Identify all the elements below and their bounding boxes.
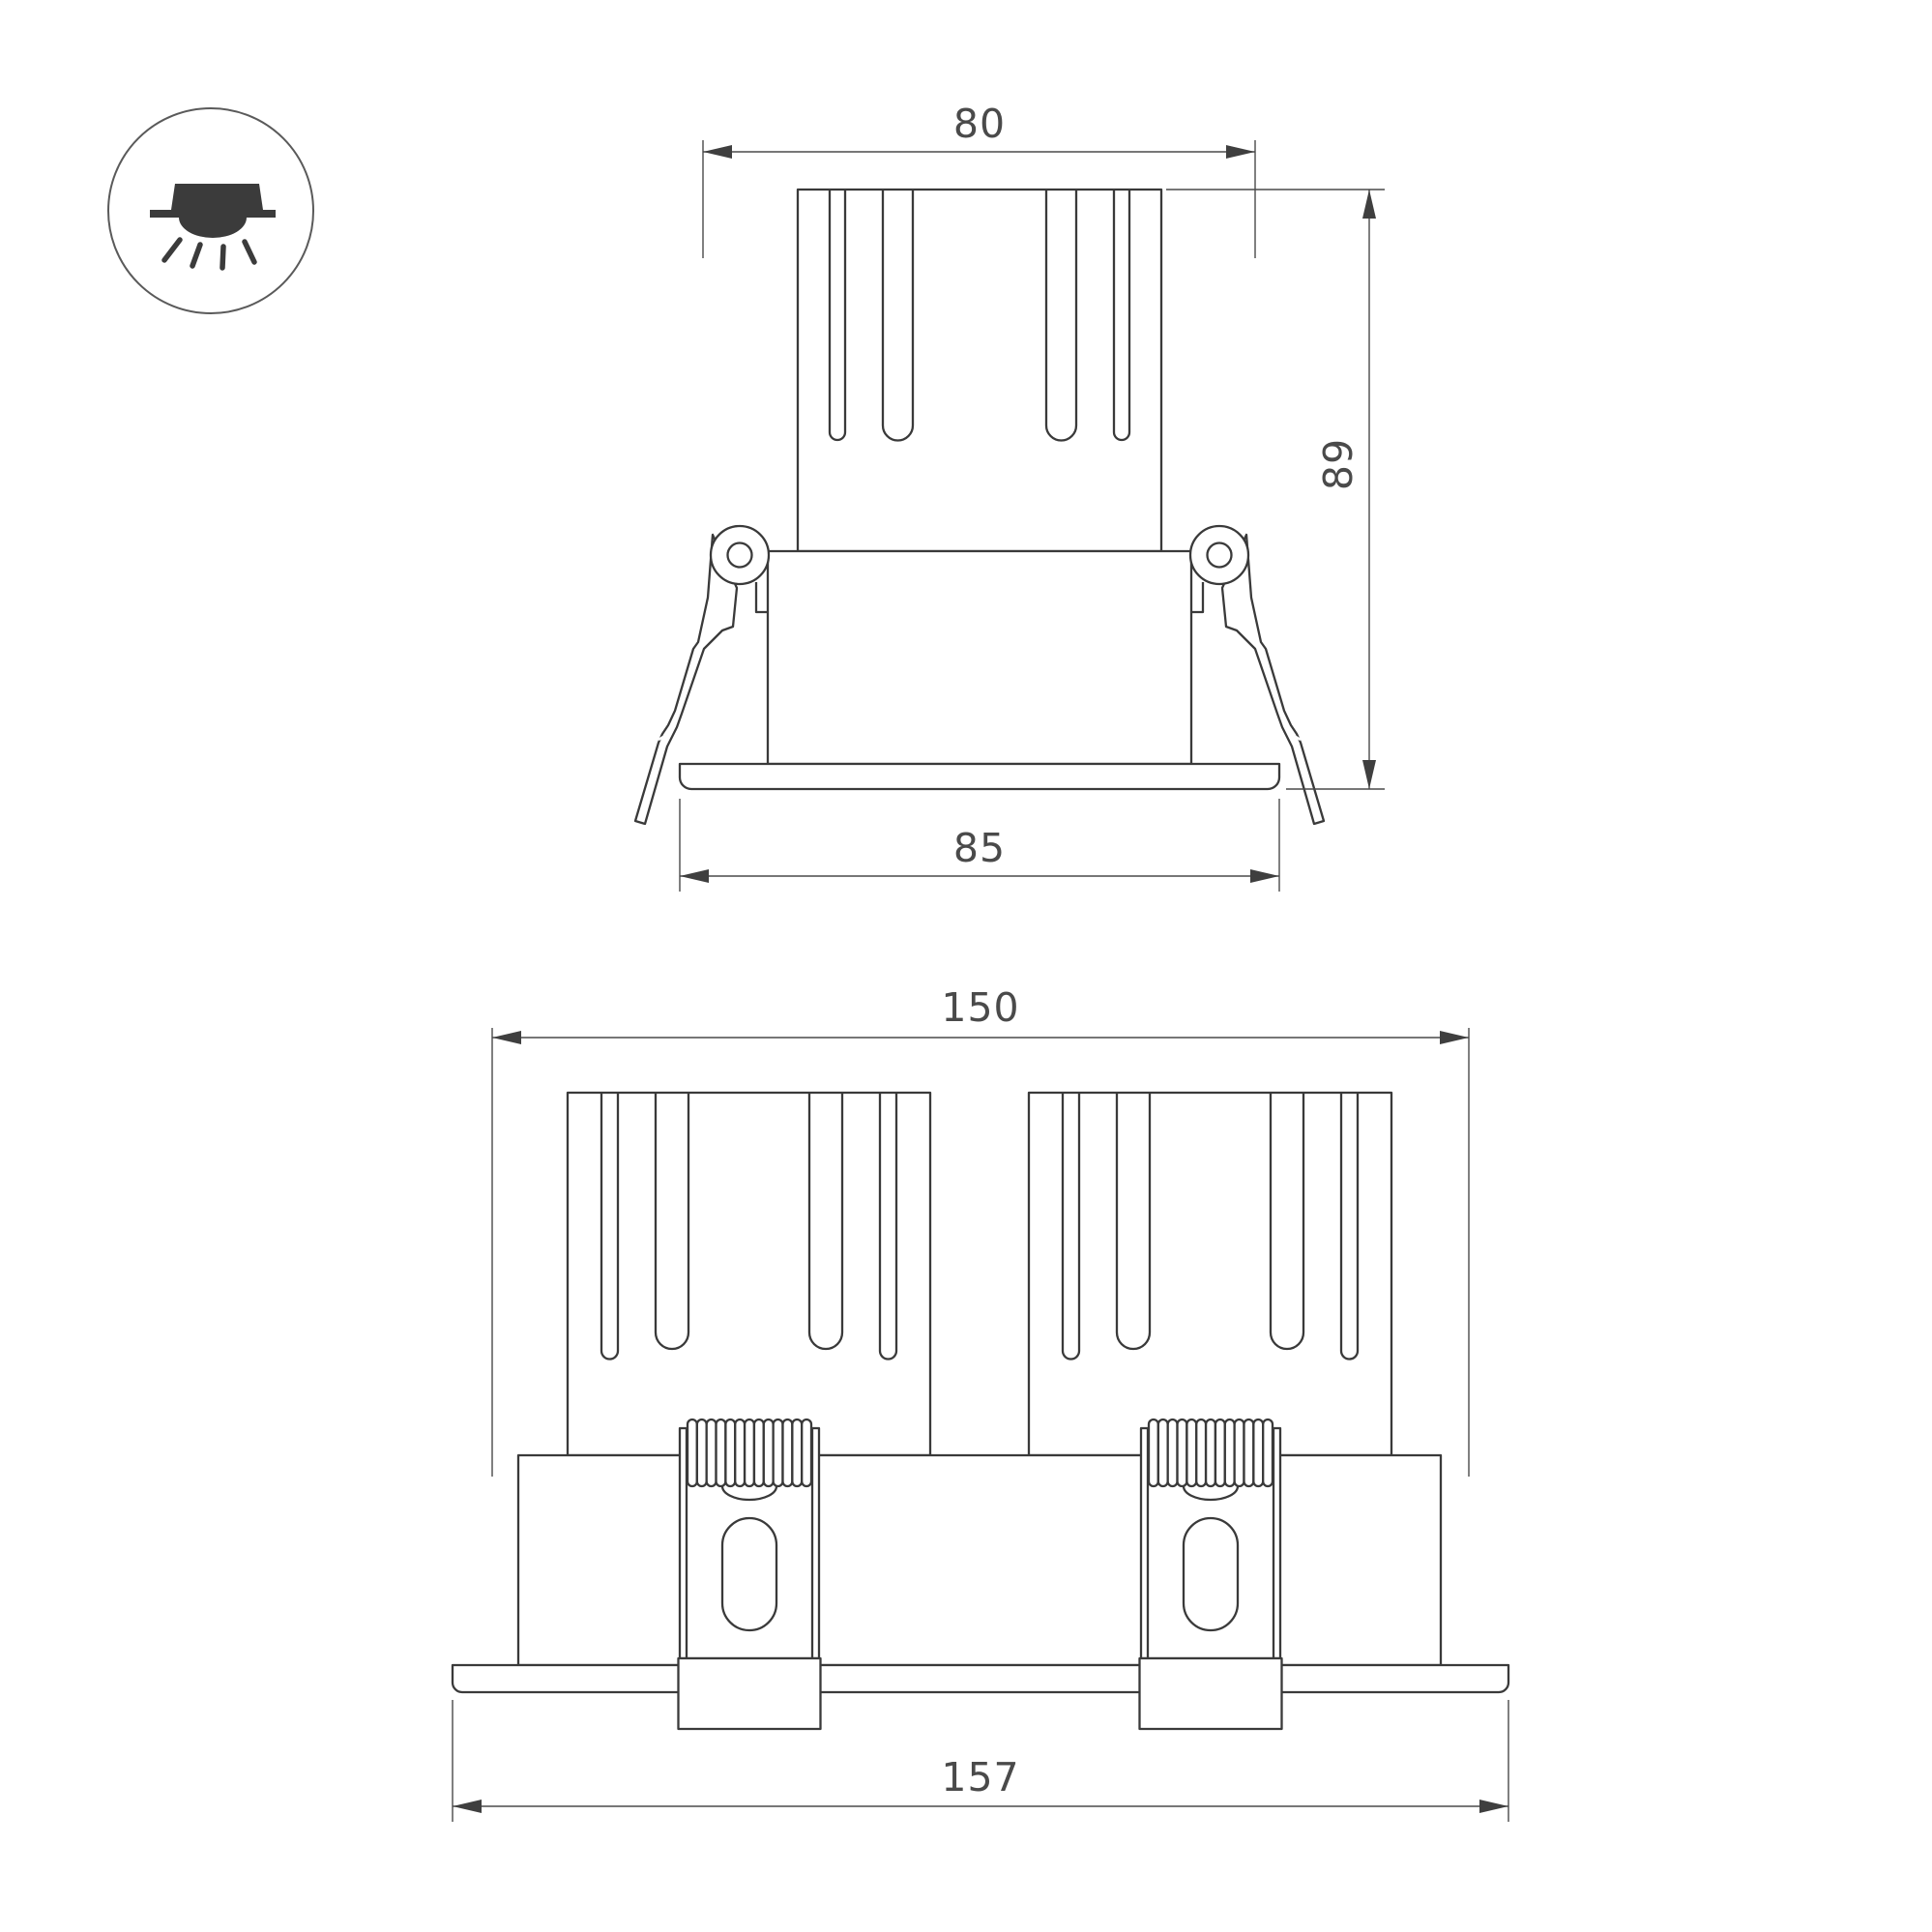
clip-pivot-right: [1190, 526, 1248, 584]
icon-light-rays: [164, 240, 254, 268]
dim-label-89: 89: [1315, 438, 1361, 490]
dim-label-150: 150: [941, 984, 1019, 1031]
dim-label-80: 80: [953, 101, 1006, 147]
single-module-view: 80 89 85: [635, 101, 1385, 892]
mounting-bracket-1: [679, 1420, 821, 1729]
dual-frame-body: [518, 1455, 1441, 1665]
heatsink-2-outline: [1029, 1093, 1391, 1455]
dim-label-157: 157: [941, 1754, 1019, 1800]
mounting-bracket-2: [1140, 1420, 1282, 1729]
dim-label-85: 85: [953, 825, 1006, 871]
dual-trim-flange: [453, 1665, 1508, 1692]
icon-lamp-lens: [179, 218, 247, 238]
trim-flange: [680, 764, 1279, 789]
dual-module-view: 150 157: [453, 984, 1508, 1822]
icon-ceiling-line: [150, 210, 276, 218]
heatsink-outline: [798, 190, 1161, 551]
heatsink-1-outline: [568, 1093, 930, 1455]
recessed-downlight-icon: [108, 108, 313, 313]
clip-pivot-left: [711, 526, 769, 584]
dimension-flange-width: 85: [680, 799, 1279, 892]
dimension-dual-flange-width: 157: [453, 1700, 1508, 1822]
lamp-body: [768, 551, 1191, 764]
dimension-drawing: 80 89 85: [0, 0, 1932, 1932]
drawing-sheet: 80 89 85: [0, 0, 1932, 1932]
icon-lamp-body: [171, 184, 263, 210]
